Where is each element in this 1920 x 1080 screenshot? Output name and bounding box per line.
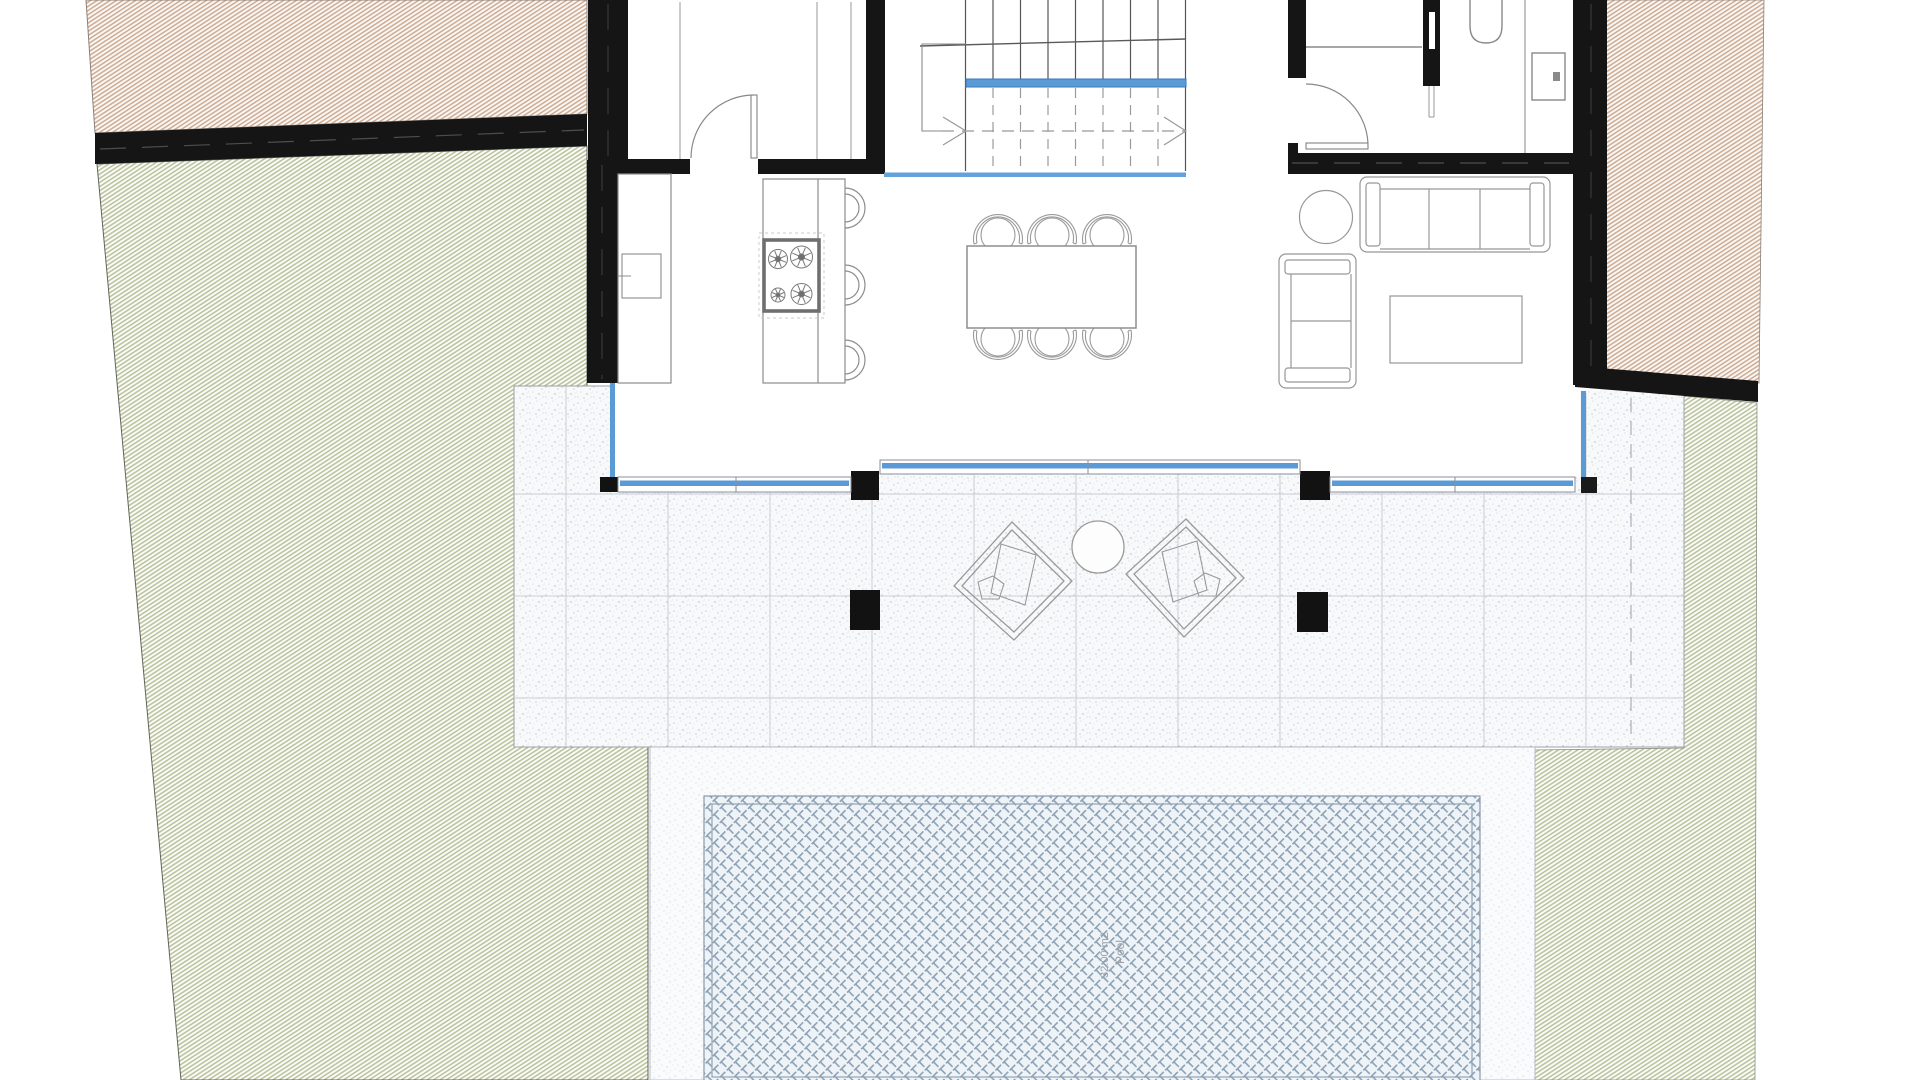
svg-text:32.00 m2: 32.00 m2 <box>1099 932 1111 978</box>
svg-text:Pool: Pool <box>1113 940 1127 964</box>
